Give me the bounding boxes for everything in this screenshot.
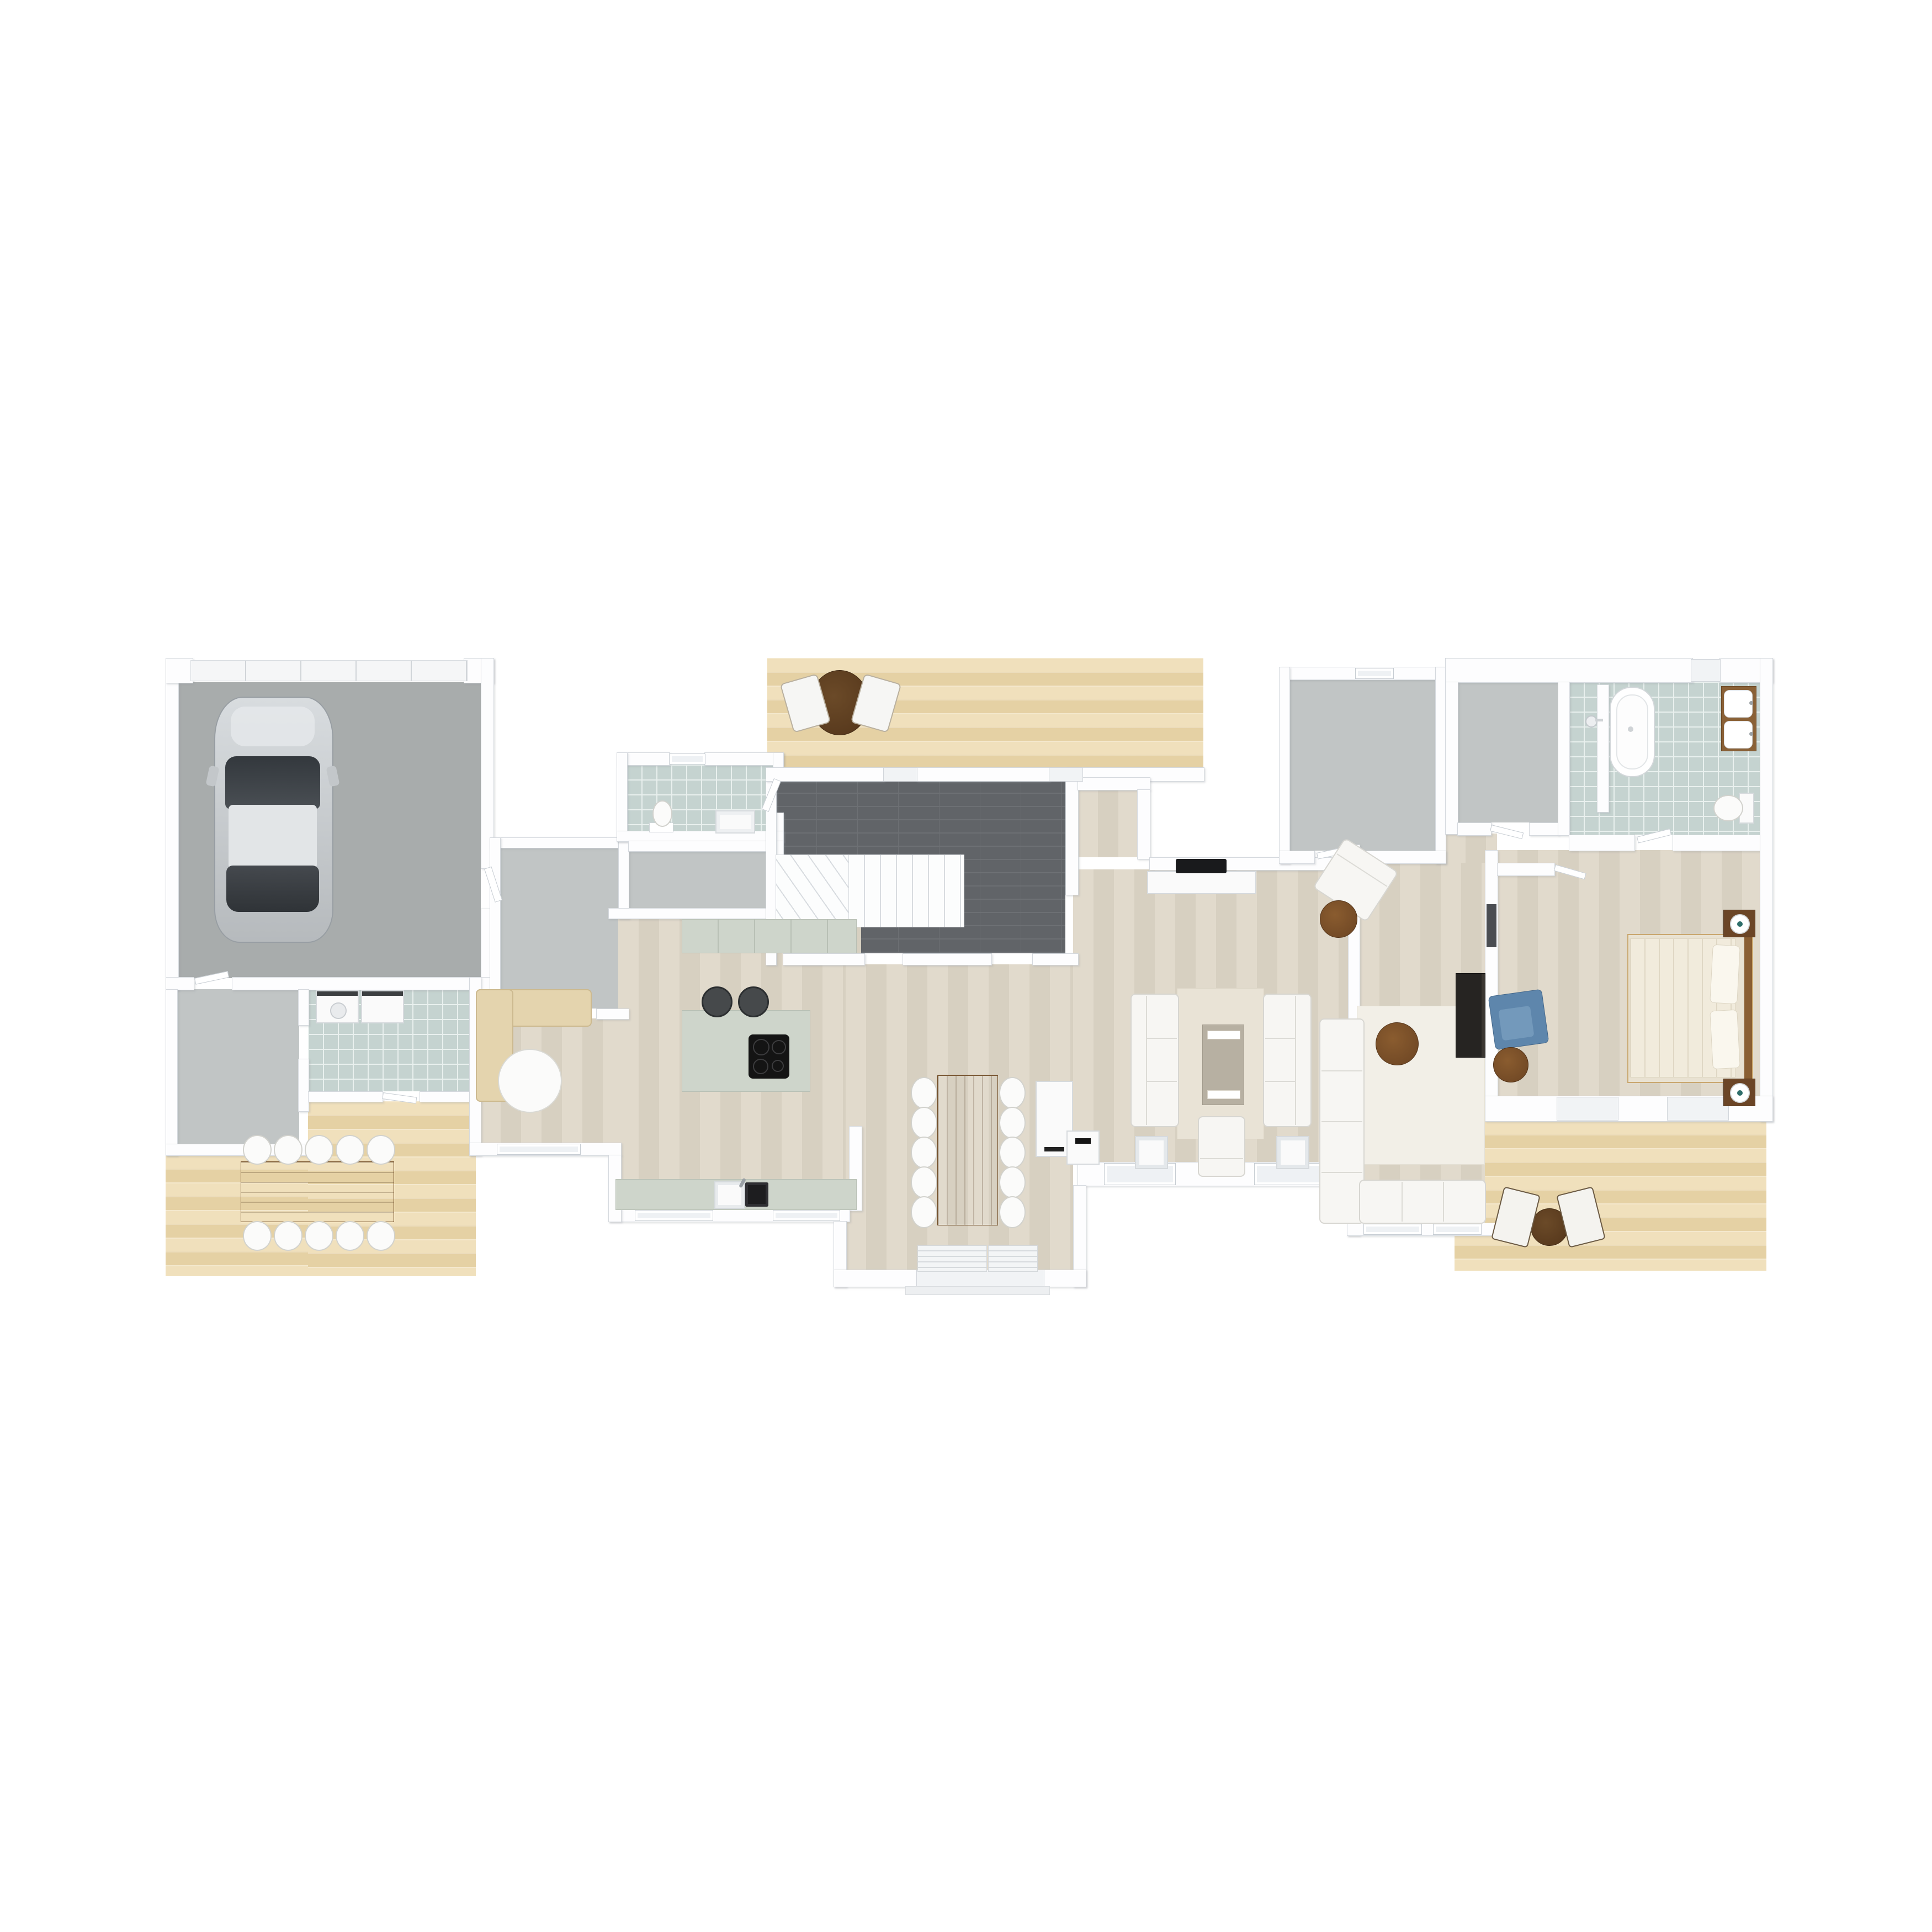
bar-stool <box>738 986 769 1017</box>
burner <box>753 1059 768 1074</box>
sofa-seam <box>1146 996 1147 1125</box>
sofa-seam <box>1200 1158 1243 1159</box>
wall <box>1435 667 1446 864</box>
outdoor-chair <box>336 1135 364 1165</box>
closet-floor <box>1457 682 1558 822</box>
front-door-opening <box>916 1270 1044 1287</box>
faucet <box>1749 732 1753 736</box>
wall <box>1497 863 1555 876</box>
dining-chair <box>999 1166 1026 1198</box>
wall <box>1078 777 1150 790</box>
wall <box>1569 835 1635 851</box>
toilet-bowl <box>1713 795 1743 821</box>
deck-door-opening <box>1049 767 1083 782</box>
wall <box>628 841 774 852</box>
nook-window <box>497 1144 581 1155</box>
living-sofa-left <box>1130 994 1179 1127</box>
faucet <box>1749 701 1753 705</box>
nook-round-table <box>498 1049 562 1113</box>
wall <box>596 1009 629 1020</box>
dryer <box>361 990 404 1023</box>
dining-chair <box>911 1166 937 1198</box>
shower-partition-wall <box>1597 684 1609 813</box>
dining-table <box>937 1075 998 1225</box>
table-lamp <box>1730 914 1750 934</box>
sofa-seam <box>1321 1172 1362 1173</box>
media-cabinet <box>1456 973 1485 1058</box>
wall <box>618 837 629 919</box>
outdoor-chair <box>243 1135 272 1165</box>
family-sectional-arm <box>1319 1018 1365 1224</box>
wall <box>1043 1270 1086 1287</box>
wall <box>1032 953 1079 965</box>
outdoor-chair <box>367 1221 395 1251</box>
vanity-sink <box>1724 721 1753 749</box>
kitchen-window <box>635 1210 713 1221</box>
bathroom-entry-door <box>1691 659 1721 682</box>
dining-chair <box>999 1107 1026 1139</box>
sofa-seam <box>1147 1038 1177 1039</box>
alcove-floor <box>1078 789 1137 857</box>
dryer-panel <box>362 991 403 996</box>
wall <box>617 752 628 842</box>
sofa-seam <box>1321 1070 1362 1071</box>
garage-sectional-door <box>190 660 468 681</box>
hall-west-floor <box>500 847 618 1009</box>
mudroom-floor <box>177 989 299 1144</box>
side-table-glass <box>1135 1136 1168 1169</box>
dining-chair <box>999 1137 1026 1169</box>
coffee-table-tray <box>1207 1031 1240 1039</box>
sofa-seam <box>1147 1081 1177 1082</box>
blue-armchair <box>1488 989 1549 1050</box>
car-windshield <box>225 756 320 809</box>
living-sofa-right <box>1263 994 1312 1127</box>
wall <box>1760 658 1773 1122</box>
floor-lamp-slot <box>1075 1138 1091 1144</box>
storage-room-floor <box>1289 679 1435 851</box>
burner <box>772 1060 784 1072</box>
floor-plan-canvas <box>0 0 1932 1932</box>
wall <box>834 1270 917 1287</box>
wall <box>608 908 784 919</box>
dining-chair <box>999 1077 1026 1109</box>
wall <box>166 989 178 1156</box>
outdoor-dining-table <box>241 1161 394 1222</box>
wc-window <box>669 753 705 765</box>
wall <box>1279 851 1315 864</box>
wall <box>166 658 193 683</box>
floor-lamp <box>1066 1130 1100 1165</box>
living-armchair <box>1198 1116 1245 1177</box>
tv-bench <box>1147 871 1256 894</box>
kitchen-window <box>773 1210 840 1221</box>
storage-window <box>1355 668 1394 679</box>
bedroom-side-table <box>1493 1047 1528 1082</box>
family-window <box>1433 1224 1482 1235</box>
lamp-center <box>1737 921 1743 927</box>
side-table-glass <box>1276 1136 1309 1169</box>
wall <box>1279 667 1290 864</box>
wall <box>783 953 865 965</box>
staircase-run <box>848 854 964 927</box>
sofa-seam <box>1402 1182 1403 1222</box>
family-window <box>1363 1224 1422 1235</box>
entrance-grate <box>988 1245 1038 1272</box>
car-hood <box>231 707 315 746</box>
kitchen-island <box>682 1010 810 1092</box>
cooktop <box>749 1034 789 1079</box>
washer-door <box>330 1002 347 1019</box>
sofa-seam <box>1265 1038 1295 1039</box>
outdoor-chair <box>243 1221 272 1251</box>
bathtub-drain <box>1628 726 1633 732</box>
bedroom-deck-door <box>1557 1097 1618 1121</box>
sofa-seam <box>1265 1081 1295 1082</box>
cabinet-vent <box>1044 1147 1064 1151</box>
kitchen-sink-basin <box>745 1182 768 1207</box>
vanity-sink <box>1724 690 1753 718</box>
burner <box>753 1039 769 1055</box>
coffee-table <box>1202 1025 1244 1105</box>
sofa-seam <box>1321 1121 1362 1122</box>
outdoor-chair <box>274 1135 302 1165</box>
bathtub-inner <box>1616 694 1648 769</box>
bathtub <box>1610 687 1655 777</box>
outdoor-chair <box>336 1221 364 1251</box>
table-lamp <box>1730 1083 1750 1103</box>
tv <box>1176 859 1227 873</box>
wall <box>308 1091 383 1102</box>
wall <box>766 767 884 782</box>
coffee-table-tray <box>1207 1090 1240 1099</box>
wall <box>617 831 784 842</box>
bedroom-deck-door <box>1667 1097 1729 1121</box>
kitchen-wall-counter <box>682 919 857 953</box>
pantry-floor <box>628 851 773 908</box>
outdoor-chair <box>274 1221 302 1251</box>
wall <box>1445 682 1458 835</box>
outdoor-chair <box>305 1135 333 1165</box>
entrance-grate <box>917 1245 987 1272</box>
car-roof <box>229 805 317 869</box>
dining-chair <box>911 1077 937 1109</box>
bar-stool <box>702 986 733 1017</box>
entrance-step <box>905 1286 1050 1295</box>
wall <box>1673 835 1761 851</box>
wall <box>166 658 179 990</box>
vanity <box>1721 686 1756 751</box>
wall <box>1445 658 1693 683</box>
dining-chair <box>999 1196 1026 1228</box>
dining-chair <box>911 1107 937 1139</box>
wall <box>1137 789 1150 859</box>
wall <box>298 1059 309 1112</box>
bed-pillow <box>1710 1010 1740 1069</box>
family-side-table <box>1320 900 1357 938</box>
car <box>214 697 331 941</box>
wall <box>1529 822 1559 836</box>
washer <box>316 990 359 1023</box>
wc-toilet-bowl <box>652 800 672 827</box>
dining-chair <box>911 1137 937 1169</box>
sofa-seam <box>1443 1182 1444 1222</box>
wall <box>490 837 629 848</box>
wall <box>166 977 194 990</box>
shower-head <box>1585 715 1597 728</box>
outdoor-chair <box>305 1221 333 1251</box>
wall <box>298 989 309 1026</box>
bed-pillow <box>1710 944 1740 1004</box>
bedroom-wardrobe <box>1487 904 1496 947</box>
outdoor-chair <box>367 1135 395 1165</box>
family-sectional-chaise <box>1359 1180 1486 1224</box>
washer-panel <box>317 991 358 996</box>
wall <box>903 953 992 965</box>
car-rear-glass <box>226 866 319 912</box>
wall <box>1065 767 1079 895</box>
sofa-seam <box>1295 996 1296 1125</box>
deck-door-opening <box>883 767 917 782</box>
burner <box>772 1040 786 1054</box>
wall <box>1558 682 1570 836</box>
wall <box>1457 822 1492 836</box>
wall <box>704 752 784 766</box>
shower-arm <box>1595 719 1603 721</box>
wall <box>232 977 494 990</box>
family-coffee-table <box>1376 1022 1419 1065</box>
lamp-center <box>1737 1090 1743 1096</box>
blue-armchair-seat <box>1498 1006 1534 1041</box>
dining-chair <box>911 1196 937 1228</box>
bed-headboard <box>1744 936 1752 1079</box>
wc-sink <box>715 810 755 834</box>
wall <box>916 767 1050 782</box>
